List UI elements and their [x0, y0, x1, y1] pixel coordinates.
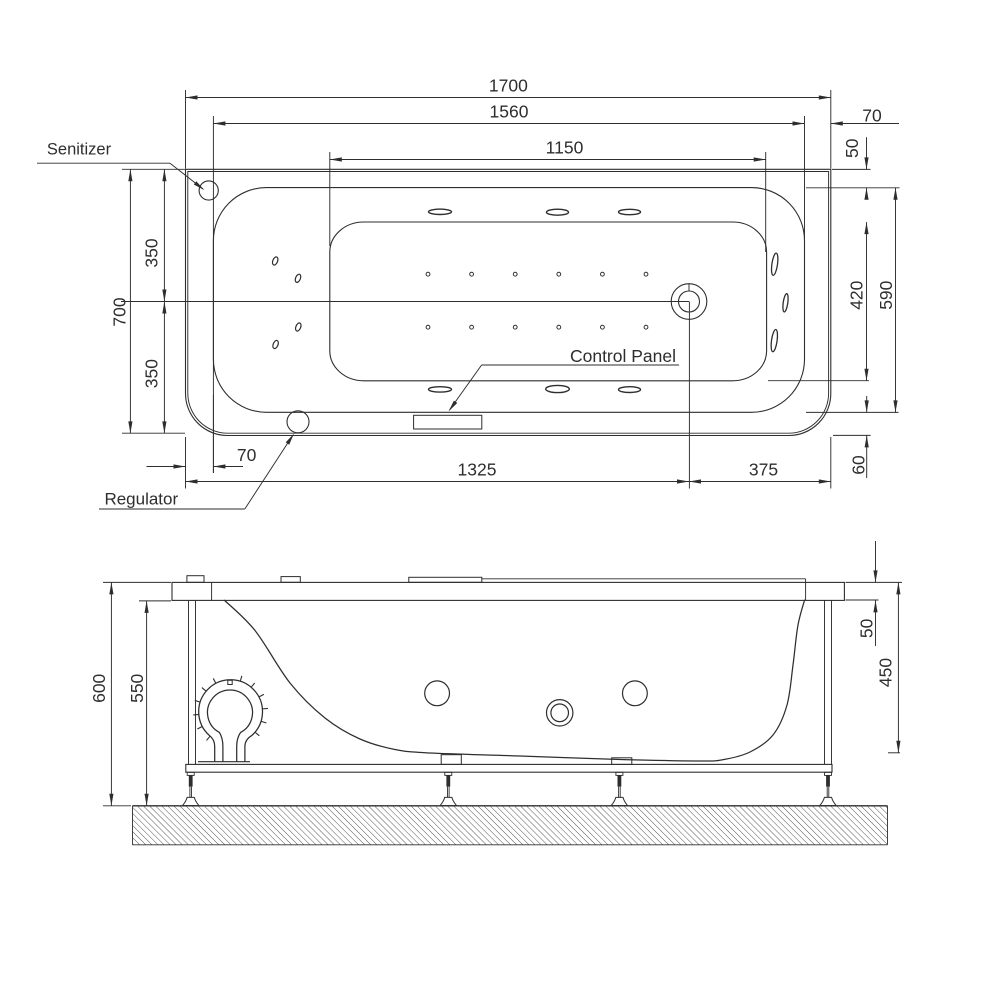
svg-text:50: 50 — [842, 138, 862, 158]
svg-text:350: 350 — [142, 238, 162, 267]
svg-text:60: 60 — [848, 455, 868, 475]
svg-text:70: 70 — [862, 105, 882, 125]
svg-text:590: 590 — [876, 280, 896, 309]
svg-text:Control Panel: Control Panel — [570, 346, 676, 366]
svg-text:350: 350 — [142, 359, 162, 388]
svg-text:1325: 1325 — [458, 459, 497, 479]
svg-text:1700: 1700 — [489, 76, 528, 96]
svg-text:375: 375 — [749, 459, 778, 479]
svg-text:50: 50 — [857, 618, 877, 638]
svg-text:600: 600 — [89, 673, 109, 702]
svg-text:550: 550 — [127, 673, 147, 702]
svg-text:1150: 1150 — [546, 138, 584, 158]
svg-text:420: 420 — [847, 280, 867, 309]
svg-text:70: 70 — [237, 445, 257, 465]
svg-text:Senitizer: Senitizer — [47, 140, 112, 158]
svg-text:450: 450 — [875, 658, 895, 687]
svg-text:Regulator: Regulator — [104, 490, 178, 509]
svg-text:1560: 1560 — [490, 102, 529, 122]
svg-text:700: 700 — [110, 297, 130, 326]
